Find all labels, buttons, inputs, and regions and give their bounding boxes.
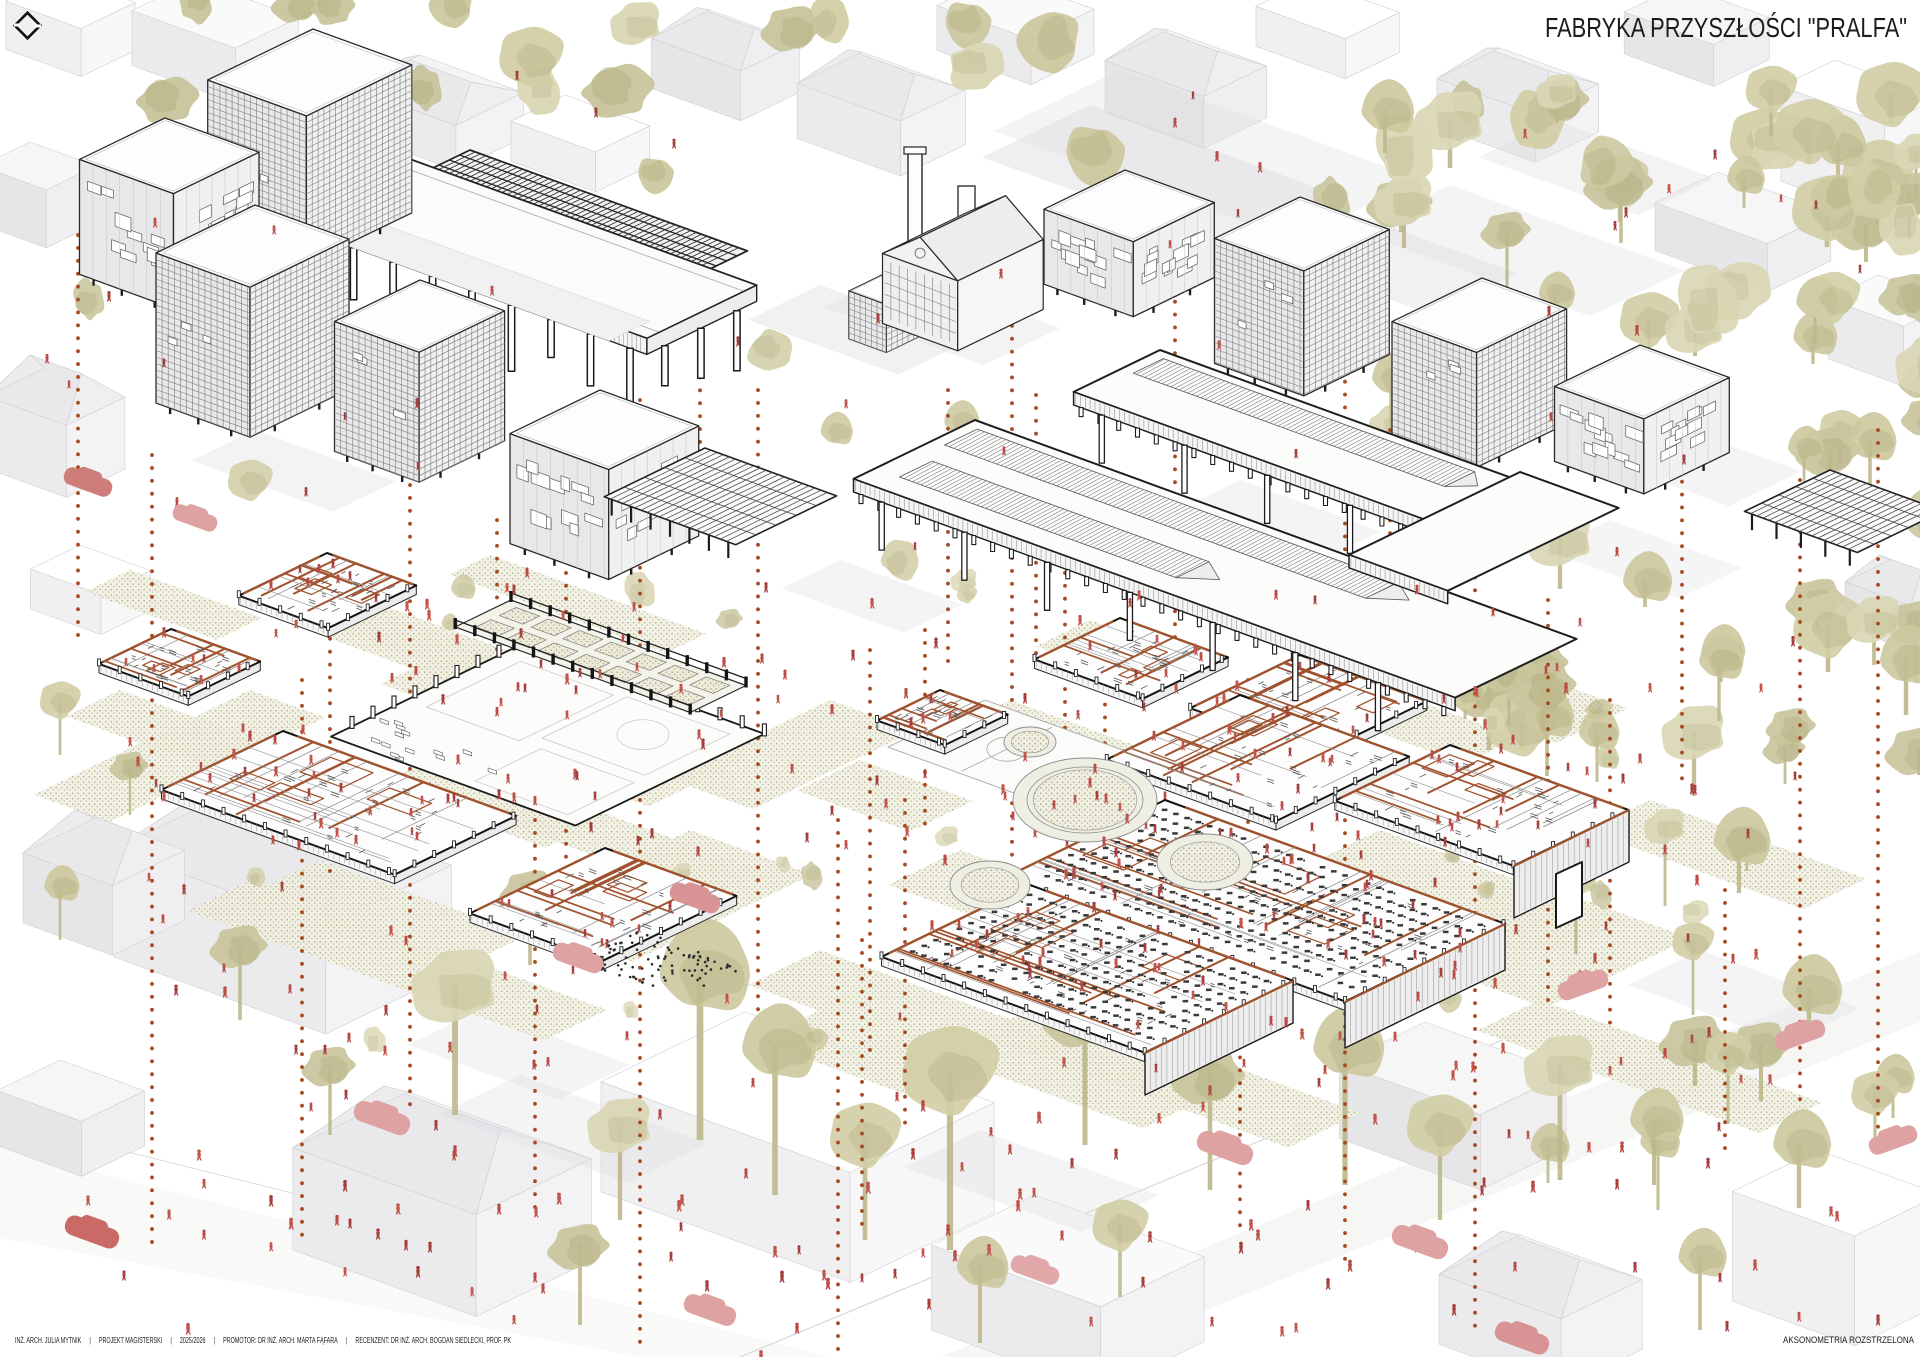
svg-text:FABRYKA PRZYSZŁOŚCI "PRALFA": FABRYKA PRZYSZŁOŚCI "PRALFA" xyxy=(1545,11,1907,43)
svg-text:AKSONOMETRIA ROZSTRZELONA: AKSONOMETRIA ROZSTRZELONA xyxy=(1783,1335,1915,1346)
svg-text:INŻ. ARCH. JULIA MYTNIK | PR: INŻ. ARCH. JULIA MYTNIK | PROJEKT MAGIST… xyxy=(15,1335,511,1345)
